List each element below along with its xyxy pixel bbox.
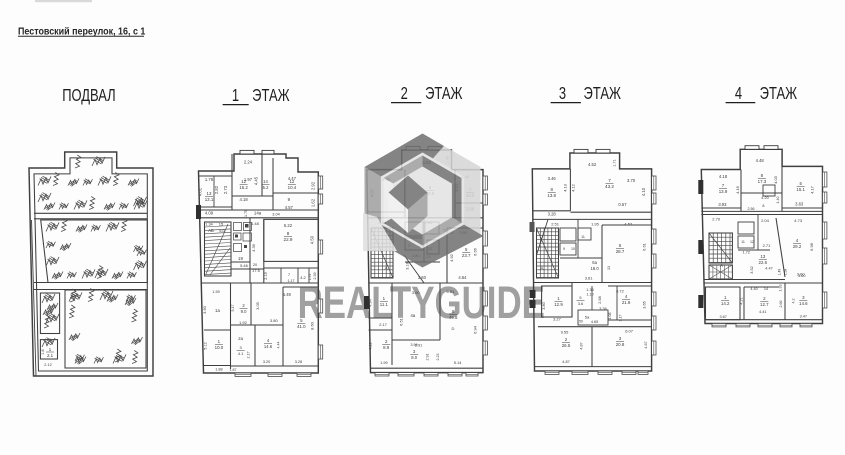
svg-text:2.19: 2.19 [264,272,268,279]
svg-text:20: 20 [253,263,257,267]
svg-text:13.1: 13.1 [205,197,214,202]
svg-text:1.40: 1.40 [776,197,780,204]
svg-text:41.0: 41.0 [297,324,306,329]
svg-text:4.50: 4.50 [310,235,315,244]
svg-text:2а: 2а [238,336,243,341]
svg-text:3.70: 3.70 [627,178,636,183]
svg-text:8.60: 8.60 [310,321,315,330]
svg-text:1.78: 1.78 [205,177,214,182]
svg-text:4.57: 4.57 [285,205,294,210]
svg-text:4.1: 4.1 [238,351,244,356]
svg-text:1.33: 1.33 [779,285,783,292]
svg-text:4.41: 4.41 [759,310,766,314]
svg-text:4.45: 4.45 [254,176,259,185]
svg-text:4.67: 4.67 [644,341,648,348]
svg-text:3.47: 3.47 [800,315,807,319]
svg-text:4.12: 4.12 [571,183,576,192]
svg-text:3.60: 3.60 [418,275,427,280]
svg-text:10.0: 10.0 [215,345,224,350]
svg-text:23.7: 23.7 [462,253,471,258]
svg-text:1.62: 1.62 [311,198,316,207]
svg-text:4.39: 4.39 [251,243,256,252]
svg-text:3.65: 3.65 [643,301,647,308]
svg-text:1.08: 1.08 [608,313,612,320]
svg-text:10: 10 [571,247,575,251]
svg-text:1.48: 1.48 [251,221,260,226]
svg-text:1.8: 1.8 [41,349,45,354]
svg-text:5.2: 5.2 [263,185,269,190]
svg-text:49.8: 49.8 [449,315,458,320]
svg-text:13.9: 13.9 [719,189,728,194]
svg-text:1: 1 [232,86,239,105]
svg-text:3.60: 3.60 [202,305,207,314]
svg-text:1.75: 1.75 [308,274,312,281]
svg-text:11: 11 [581,235,585,239]
svg-text:3.80: 3.80 [270,318,279,323]
svg-text:4.20: 4.20 [761,196,768,200]
svg-text:2.91: 2.91 [415,344,422,348]
svg-text:12: 12 [750,240,754,244]
svg-text:1.95: 1.95 [591,222,600,227]
svg-text:18.0: 18.0 [591,266,600,271]
svg-text:3.63: 3.63 [795,202,804,207]
svg-text:6.07: 6.07 [625,329,634,334]
svg-text:2.73: 2.73 [223,185,228,194]
svg-text:D: D [452,326,455,331]
svg-text:4.52: 4.52 [624,222,633,227]
svg-text:15: 15 [219,222,224,227]
svg-text:4.17: 4.17 [810,185,815,194]
svg-text:3.04: 3.04 [272,213,279,217]
svg-text:5а: 5а [585,315,590,320]
svg-text:6.51: 6.51 [399,317,404,326]
svg-text:6.61: 6.61 [642,242,647,251]
svg-text:2.1: 2.1 [47,353,54,358]
svg-text:12: 12 [289,179,294,184]
svg-text:1.75: 1.75 [244,210,248,217]
svg-text:14a: 14a [254,211,262,216]
svg-text:5.17: 5.17 [231,305,235,312]
svg-text:17.3: 17.3 [758,179,767,184]
svg-text:10.4: 10.4 [288,185,297,190]
svg-text:4.16: 4.16 [735,185,740,194]
svg-text:4.47: 4.47 [765,267,772,271]
svg-text:4.01: 4.01 [198,187,203,196]
svg-text:4.44: 4.44 [277,342,281,349]
svg-text:1.49: 1.49 [778,269,782,276]
svg-text:4.10: 4.10 [641,187,646,196]
svg-text:9: 9 [563,247,565,251]
svg-text:4.03: 4.03 [773,175,778,184]
svg-text:3.28: 3.28 [548,212,557,217]
svg-text:2.66: 2.66 [779,301,783,308]
svg-text:20.8: 20.8 [616,342,625,347]
svg-text:REALTYGUIDE: REALTYGUIDE [298,278,545,328]
svg-text:1.34: 1.34 [586,288,593,292]
svg-text:11.1: 11.1 [380,302,389,307]
svg-text:50: 50 [579,320,583,324]
svg-text:22.9: 22.9 [284,237,293,242]
svg-text:5.12: 5.12 [204,342,208,349]
svg-text:3.18: 3.18 [406,262,410,269]
svg-text:21.9: 21.9 [622,300,631,305]
svg-text:4а: 4а [410,313,415,318]
svg-text:12: 12 [241,179,246,184]
svg-text:4.18: 4.18 [719,174,728,179]
svg-text:ЭТАЖ: ЭТАЖ [252,86,289,105]
svg-text:4.64: 4.64 [458,275,467,280]
svg-text:ЭТАЖ: ЭТАЖ [760,84,797,103]
svg-text:3.52: 3.52 [750,266,754,273]
svg-text:3.80: 3.80 [542,302,546,309]
svg-text:43.2: 43.2 [605,184,614,189]
svg-text:6.94: 6.94 [472,325,477,334]
svg-text:4: 4 [735,84,743,103]
svg-text:6.66: 6.66 [472,247,477,256]
svg-text:13: 13 [760,254,765,259]
svg-text:1.72: 1.72 [743,251,750,255]
svg-text:0.57: 0.57 [618,202,627,207]
svg-text:14.2: 14.2 [721,301,730,306]
svg-text:5.14: 5.14 [454,360,463,365]
svg-text:5.0: 5.0 [219,228,225,233]
svg-text:15.1: 15.1 [796,187,805,192]
svg-text:4.52: 4.52 [588,162,597,167]
svg-text:3.46: 3.46 [548,176,557,181]
svg-text:13.8: 13.8 [547,193,556,198]
svg-text:2.39: 2.39 [313,273,317,280]
svg-text:3.61: 3.61 [585,276,594,281]
svg-text:5.22: 5.22 [284,223,293,228]
svg-text:А: А [541,266,544,271]
svg-text:13: 13 [207,191,212,196]
svg-text:2.17: 2.17 [247,352,251,359]
svg-text:ЭТАЖ: ЭТАЖ [584,84,621,103]
svg-text:3.93: 3.93 [718,202,727,207]
svg-text:2.04: 2.04 [761,218,770,223]
svg-text:1.58: 1.58 [784,269,788,276]
svg-text:5.46: 5.46 [240,263,249,268]
svg-text:2.82: 2.82 [214,185,219,194]
svg-text:4.87: 4.87 [562,360,569,364]
svg-text:4.18: 4.18 [240,197,249,202]
svg-text:3.05: 3.05 [256,302,260,309]
svg-text:АБ: АБ [208,228,214,233]
svg-text:4.34: 4.34 [369,299,373,306]
svg-text:3.20: 3.20 [263,360,270,364]
svg-text:1.88: 1.88 [215,368,222,372]
svg-text:5.49: 5.49 [283,292,292,297]
svg-text:2: 2 [401,84,408,103]
svg-text:3.6: 3.6 [578,301,584,306]
svg-text:2.68: 2.68 [598,296,602,303]
svg-text:14.6: 14.6 [264,344,273,349]
svg-text:3.27: 3.27 [553,317,562,322]
svg-text:3.60: 3.60 [798,274,805,278]
svg-text:А: А [720,263,723,268]
svg-text:2.71: 2.71 [763,243,772,248]
svg-text:2.70: 2.70 [712,217,721,222]
svg-text:14.6: 14.6 [799,301,808,306]
svg-text:8.9: 8.9 [383,345,390,350]
svg-text:2.24: 2.24 [244,159,253,164]
svg-text:3.00: 3.00 [412,290,421,295]
svg-text:11: 11 [741,240,745,244]
svg-text:ПОДВАЛ: ПОДВАЛ [62,86,115,105]
svg-text:26.5: 26.5 [562,343,571,348]
svg-text:19: 19 [238,256,243,261]
svg-text:4.48: 4.48 [756,158,765,163]
svg-text:8: 8 [762,204,764,208]
svg-text:28.7: 28.7 [616,249,625,254]
svg-text:4.13: 4.13 [563,183,568,192]
svg-text:4.09: 4.09 [205,211,214,216]
svg-text:14: 14 [764,287,768,291]
svg-text:4.65: 4.65 [591,320,598,324]
svg-text:4.22: 4.22 [369,342,373,349]
svg-text:1.17: 1.17 [288,279,295,283]
svg-text:2.23: 2.23 [436,354,440,361]
svg-text:ЭТАЖ: ЭТАЖ [425,84,462,103]
svg-text:6а: 6а [592,260,597,265]
svg-text:2.17: 2.17 [379,322,388,327]
svg-text:1.34: 1.34 [205,223,212,227]
svg-text:4.2: 4.2 [792,299,796,304]
svg-text:12.9: 12.9 [554,302,563,307]
svg-text:7: 7 [608,178,611,183]
svg-text:4.87: 4.87 [580,342,584,349]
svg-text:1.99: 1.99 [380,361,387,365]
svg-text:12.7: 12.7 [760,302,769,307]
svg-text:3.67: 3.67 [720,315,727,319]
svg-text:1.87: 1.87 [230,368,237,372]
svg-text:5.81: 5.81 [446,289,455,294]
svg-text:9.0: 9.0 [241,309,247,314]
svg-text:6.98: 6.98 [809,242,814,251]
svg-text:1.71: 1.71 [612,159,616,166]
svg-text:4.21: 4.21 [740,297,744,304]
svg-text:3.28: 3.28 [295,360,302,364]
svg-text:1.92: 1.92 [239,320,248,325]
svg-text:15.2: 15.2 [239,185,248,190]
svg-text:22.6: 22.6 [759,260,768,265]
svg-text:2.56: 2.56 [748,207,755,211]
svg-text:4.92: 4.92 [449,253,454,262]
svg-text:8.0: 8.0 [411,355,417,360]
svg-text:17.5: 17.5 [252,268,261,273]
svg-text:8: 8 [287,231,290,236]
svg-text:4.2: 4.2 [300,275,306,280]
svg-text:4.40: 4.40 [750,287,757,291]
svg-text:14: 14 [263,179,268,184]
svg-text:2.92: 2.92 [311,181,316,190]
svg-text:29.2: 29.2 [793,244,802,249]
svg-text:3: 3 [559,84,566,103]
svg-text:4.73: 4.73 [794,218,803,223]
svg-text:А: А [385,266,388,271]
svg-text:2.12: 2.12 [44,363,51,367]
svg-text:9.55: 9.55 [561,330,570,335]
svg-text:1а: 1а [215,308,220,313]
svg-text:2.51: 2.51 [551,222,560,227]
svg-text:13: 13 [607,266,611,270]
svg-text:2.91: 2.91 [426,354,430,361]
svg-text:1.59: 1.59 [212,290,219,294]
